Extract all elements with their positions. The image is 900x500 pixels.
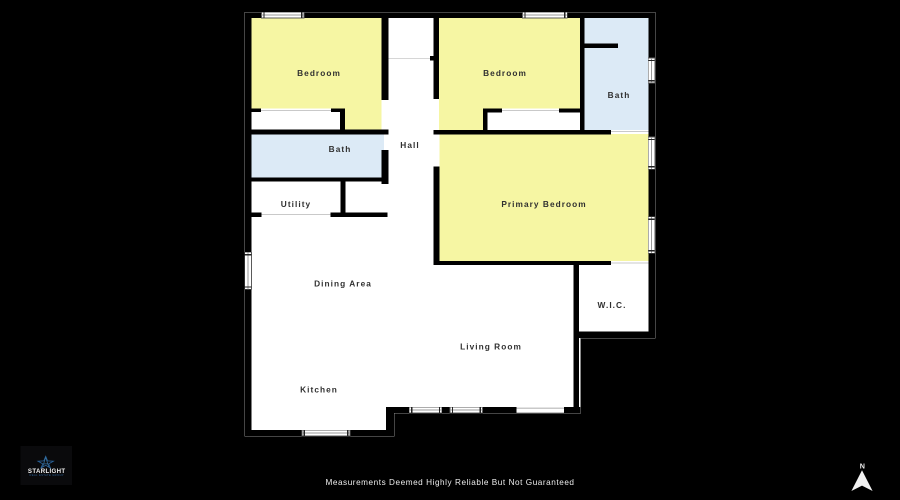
svg-text:Hall: Hall — [400, 140, 419, 150]
svg-text:Measurements Deemed Highly Rel: Measurements Deemed Highly Reliable But … — [325, 478, 574, 487]
svg-text:Utility: Utility — [281, 199, 311, 209]
svg-text:Bath: Bath — [329, 144, 352, 154]
svg-text:Bath: Bath — [608, 90, 631, 100]
svg-text:Primary Bedroom: Primary Bedroom — [501, 199, 586, 209]
svg-text:REAL ESTATE GROUP: REAL ESTATE GROUP — [30, 473, 64, 477]
svg-text:Bedroom: Bedroom — [483, 68, 527, 78]
svg-text:Living Room: Living Room — [460, 342, 522, 352]
svg-text:Bedroom: Bedroom — [297, 68, 341, 78]
svg-text:Dining Area: Dining Area — [314, 279, 372, 289]
svg-text:W.I.C.: W.I.C. — [598, 300, 627, 310]
svg-text:N: N — [860, 462, 865, 471]
svg-text:Kitchen: Kitchen — [300, 385, 338, 395]
